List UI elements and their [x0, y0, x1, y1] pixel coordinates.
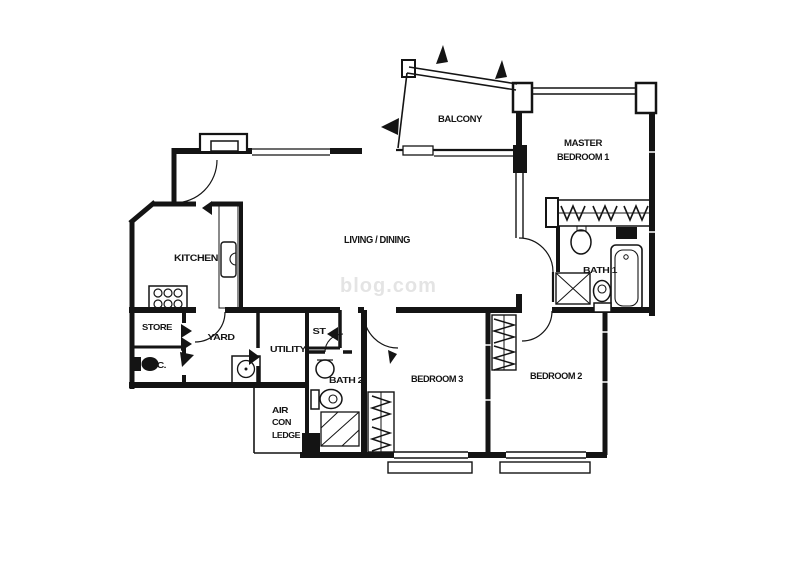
label-aircon-3: LEDGE — [272, 430, 301, 440]
label-bath1: BATH 1 — [583, 265, 618, 275]
label-bath2: BATH 2 — [329, 375, 364, 385]
label-aircon-1: AIR — [272, 405, 288, 415]
bath1-toilet-icon — [594, 281, 612, 313]
bath1-basin-icon — [571, 226, 591, 254]
kitchen-door-chevron — [202, 201, 212, 215]
label-store: STORE — [142, 322, 173, 332]
label-kitchen: KITCHEN — [174, 253, 219, 264]
bath2-toilet-icon — [311, 390, 342, 410]
kitchen-sink-icon — [219, 205, 238, 308]
label-yard: YARD — [208, 332, 235, 342]
bath2-shower-icon — [321, 412, 359, 446]
label-bedroom3: BEDROOM 3 — [411, 374, 463, 384]
wall-post — [513, 83, 532, 112]
bedroom2-window — [506, 452, 586, 458]
st-door-chevron — [327, 327, 338, 341]
label-bedroom2: BEDROOM 2 — [530, 371, 582, 381]
balcony-structure — [381, 45, 517, 156]
bedroom3-window — [394, 452, 468, 458]
entry-door — [174, 160, 217, 203]
label-aircon-2: CON — [272, 417, 291, 427]
label-master-1: MASTER — [564, 138, 603, 148]
bath1-shower-icon — [556, 273, 590, 304]
store-door-chevron — [181, 324, 192, 338]
store-door-chevron — [181, 337, 192, 351]
bedroom2-door — [522, 311, 552, 341]
master-wardrobe-icon — [558, 200, 651, 226]
label-master-2: BEDROOM 1 — [557, 152, 609, 162]
bedroom3-wardrobe-icon — [368, 392, 394, 452]
wc-door-flag — [180, 352, 194, 367]
master-door — [519, 238, 553, 272]
service-shaft-icon — [302, 433, 320, 456]
bedroom3-door — [364, 314, 398, 348]
service-shaft-icon — [616, 227, 637, 239]
label-utility: UTILITY — [270, 344, 307, 354]
bedroom2-wardrobe-icon — [492, 315, 516, 370]
wardrobes — [368, 200, 651, 452]
watermark-text: blog.com — [340, 275, 437, 297]
label-balcony: BALCONY — [438, 114, 482, 124]
label-living: LIVING / DINING — [344, 235, 411, 246]
bedroom3-door-chevron — [388, 350, 397, 364]
label-wc: W.C. — [146, 361, 166, 370]
bathtub-icon — [611, 245, 642, 311]
wall-post — [636, 83, 656, 113]
label-st: ST — [313, 327, 327, 336]
floor-plan-page: blog.com BALCONY MASTER BEDROOM 1 LIVING… — [0, 0, 800, 566]
floor-plan-drawing: blog.com BALCONY MASTER BEDROOM 1 LIVING… — [0, 0, 800, 566]
